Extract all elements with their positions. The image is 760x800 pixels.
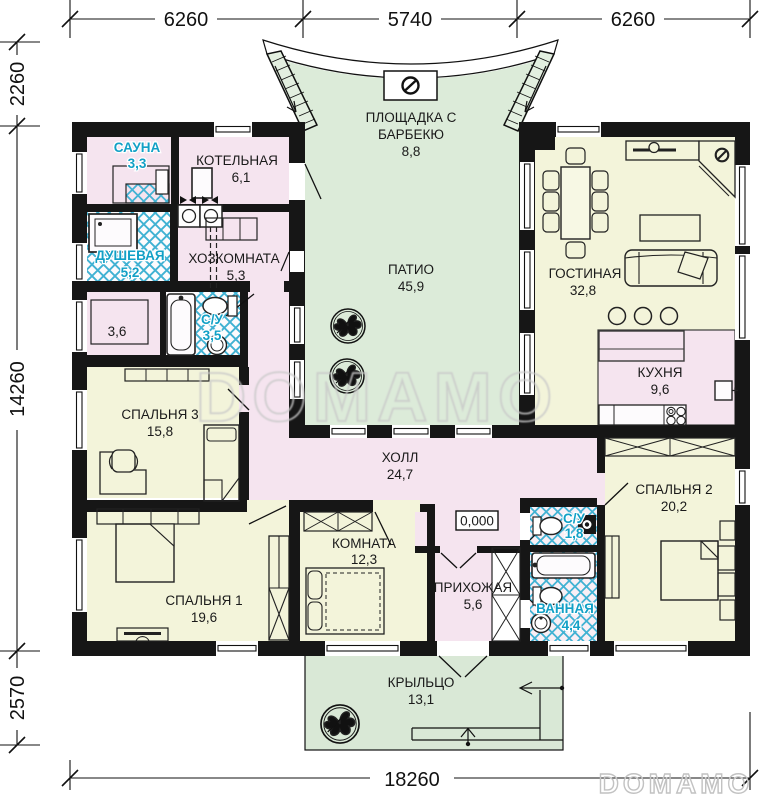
svg-text:14260: 14260	[7, 361, 29, 417]
svg-text:КОМНАТА: КОМНАТА	[332, 536, 396, 551]
svg-text:5,2: 5,2	[121, 265, 140, 280]
svg-text:ХОЛЛ: ХОЛЛ	[382, 450, 419, 465]
svg-text:3,5: 3,5	[203, 328, 222, 343]
svg-text:5,3: 5,3	[227, 268, 246, 283]
svg-text:6260: 6260	[164, 9, 209, 31]
svg-text:КРЫЛЬЦО: КРЫЛЬЦО	[388, 675, 455, 690]
svg-text:С/У: С/У	[201, 312, 224, 327]
svg-text:5,6: 5,6	[464, 597, 483, 612]
svg-text:15,8: 15,8	[147, 424, 173, 439]
svg-text:ВАННАЯ: ВАННАЯ	[536, 601, 594, 616]
svg-text:1,8: 1,8	[565, 526, 584, 541]
svg-text:4,4: 4,4	[562, 618, 581, 633]
svg-text:18260: 18260	[384, 769, 440, 791]
svg-text:СПАЛЬНЯ 3: СПАЛЬНЯ 3	[121, 407, 198, 422]
svg-text:2260: 2260	[7, 62, 29, 107]
svg-text:13,1: 13,1	[408, 692, 434, 707]
svg-text:DOMAMO: DOMAMO	[196, 358, 559, 436]
svg-text:ХОЗКОМНАТА: ХОЗКОМНАТА	[188, 251, 279, 266]
svg-text:8,8: 8,8	[402, 144, 421, 159]
svg-text:24,7: 24,7	[387, 467, 413, 482]
svg-text:12,3: 12,3	[351, 552, 377, 567]
svg-text:20,2: 20,2	[661, 499, 687, 514]
svg-text:3,6: 3,6	[108, 324, 127, 339]
svg-text:ДУШЕВАЯ: ДУШЕВАЯ	[95, 248, 164, 263]
svg-text:КУХНЯ: КУХНЯ	[637, 365, 682, 380]
svg-text:2570: 2570	[7, 676, 29, 721]
svg-text:3,3: 3,3	[128, 156, 147, 171]
svg-text:САУНА: САУНА	[114, 140, 161, 155]
svg-text:DOMAMO: DOMAMO	[599, 768, 754, 799]
svg-text:45,9: 45,9	[398, 279, 424, 294]
svg-text:СПАЛЬНЯ 1: СПАЛЬНЯ 1	[165, 593, 242, 608]
svg-text:19,6: 19,6	[191, 610, 217, 625]
svg-text:0,000: 0,000	[460, 514, 494, 529]
svg-text:ПРИХОЖАЯ: ПРИХОЖАЯ	[434, 580, 512, 595]
svg-text:ПАТИО: ПАТИО	[388, 262, 434, 277]
svg-text:КОТЕЛЬНАЯ: КОТЕЛЬНАЯ	[196, 153, 278, 168]
svg-text:6260: 6260	[611, 9, 656, 31]
svg-text:32,8: 32,8	[570, 283, 596, 298]
svg-text:5740: 5740	[388, 9, 433, 31]
svg-text:СПАЛЬНЯ 2: СПАЛЬНЯ 2	[635, 482, 712, 497]
svg-text:6,1: 6,1	[232, 170, 251, 185]
svg-text:С/У: С/У	[563, 511, 586, 526]
svg-text:ПЛОЩАДКА С: ПЛОЩАДКА С	[366, 110, 457, 125]
svg-text:БАРБЕКЮ: БАРБЕКЮ	[378, 127, 444, 142]
svg-text:9,6: 9,6	[651, 382, 670, 397]
svg-text:ГОСТИНАЯ: ГОСТИНАЯ	[549, 266, 622, 281]
